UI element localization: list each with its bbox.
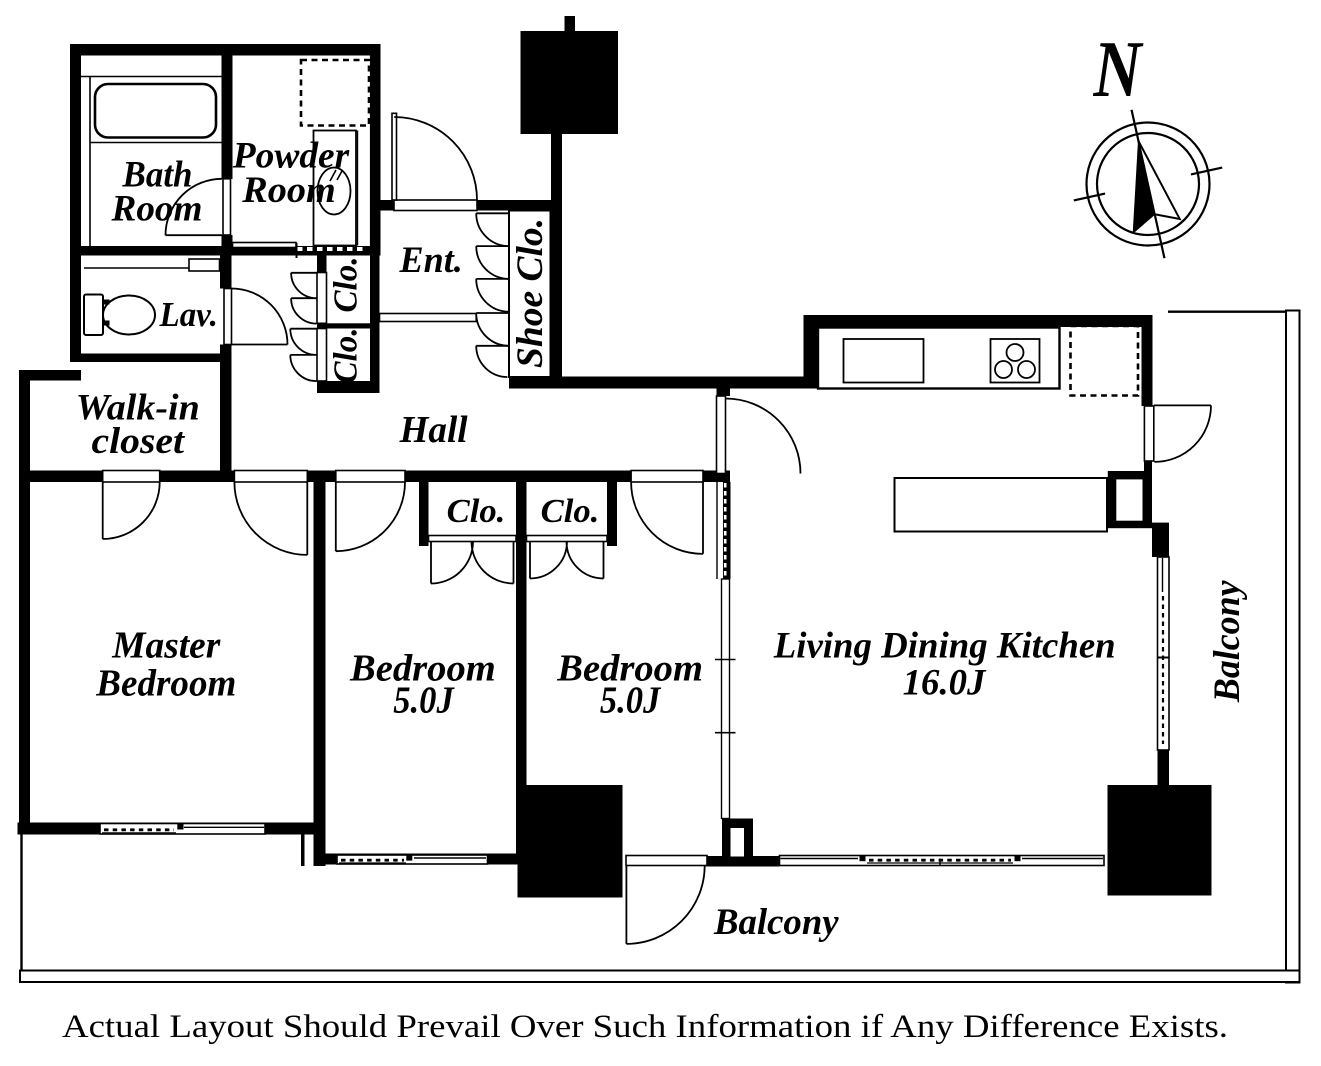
svg-text:Clo.: Clo. bbox=[447, 493, 506, 530]
svg-text:Room: Room bbox=[110, 189, 202, 230]
svg-text:N: N bbox=[1093, 26, 1145, 114]
svg-text:Master: Master bbox=[111, 625, 221, 667]
svg-text:Room: Room bbox=[241, 170, 336, 211]
svg-text:Hall: Hall bbox=[399, 409, 468, 451]
svg-text:Lav.: Lav. bbox=[159, 295, 218, 334]
svg-text:Ent.: Ent. bbox=[399, 240, 463, 281]
svg-text:Clo.: Clo. bbox=[328, 257, 365, 313]
svg-text:closet: closet bbox=[92, 421, 186, 462]
svg-text:Shoe Clo.: Shoe Clo. bbox=[510, 218, 551, 368]
svg-text:Clo.: Clo. bbox=[541, 493, 600, 530]
svg-text:Clo.: Clo. bbox=[328, 328, 365, 384]
svg-text:Balcony: Balcony bbox=[1207, 580, 1248, 703]
svg-text:Balcony: Balcony bbox=[713, 902, 839, 943]
svg-text:5.0J: 5.0J bbox=[393, 680, 454, 722]
svg-text:5.0J: 5.0J bbox=[600, 680, 661, 722]
svg-text:Living Dining Kitchen: Living Dining Kitchen bbox=[773, 626, 1116, 667]
svg-text:16.0J: 16.0J bbox=[903, 663, 987, 704]
svg-text:Actual Layout Should Prevail O: Actual Layout Should Prevail Over Such I… bbox=[62, 1009, 1228, 1045]
svg-text:Bedroom: Bedroom bbox=[95, 663, 236, 705]
